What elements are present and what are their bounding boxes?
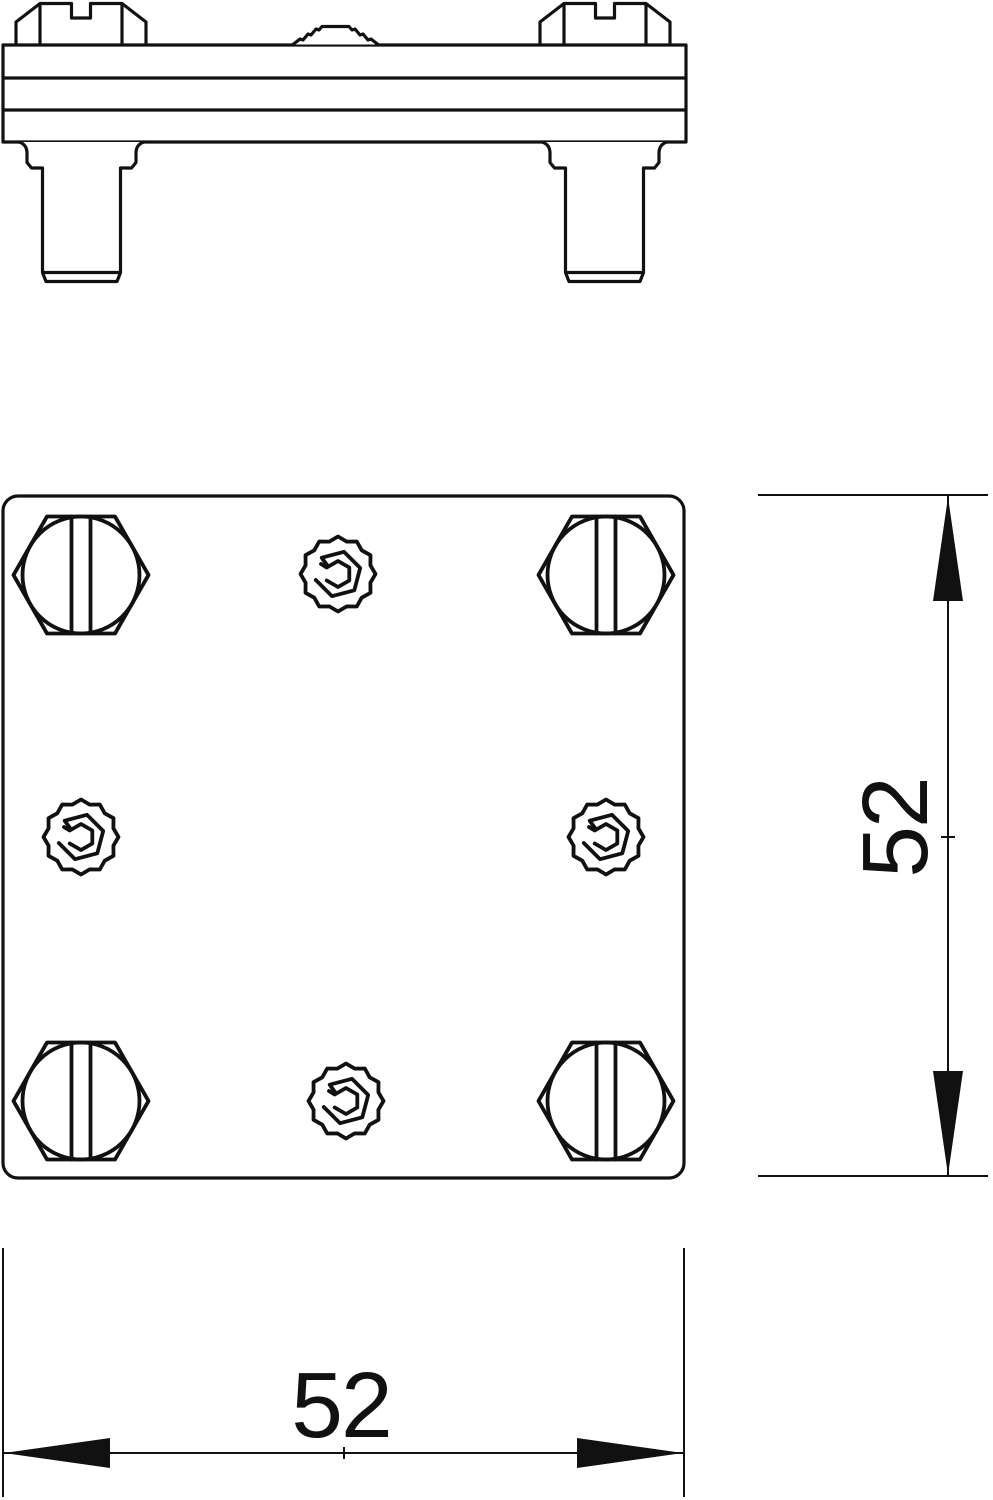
embossed-point-side [293, 27, 378, 45]
drawing-svg: 52 52 [0, 0, 993, 1500]
dimension-width: 52 [3, 1248, 684, 1497]
dim-width-arrow-right [577, 1438, 683, 1468]
plate-outline [3, 496, 684, 1178]
dim-height-arrow-down [933, 1071, 963, 1175]
dim-height-arrow-up [933, 497, 963, 601]
side-view [3, 4, 686, 282]
plan-view [3, 496, 684, 1178]
dim-height-label: 52 [843, 778, 947, 877]
side-screw-left [16, 4, 146, 46]
side-stud-right [542, 142, 667, 282]
side-screw-right [540, 4, 670, 46]
technical-drawing-canvas: 52 52 [0, 0, 993, 1500]
dim-width-label: 52 [291, 1353, 390, 1457]
clamp-body-outline [3, 45, 686, 142]
dim-width-arrow-left [4, 1438, 110, 1468]
side-stud-left [19, 142, 144, 282]
dimension-height: 52 [758, 495, 988, 1176]
